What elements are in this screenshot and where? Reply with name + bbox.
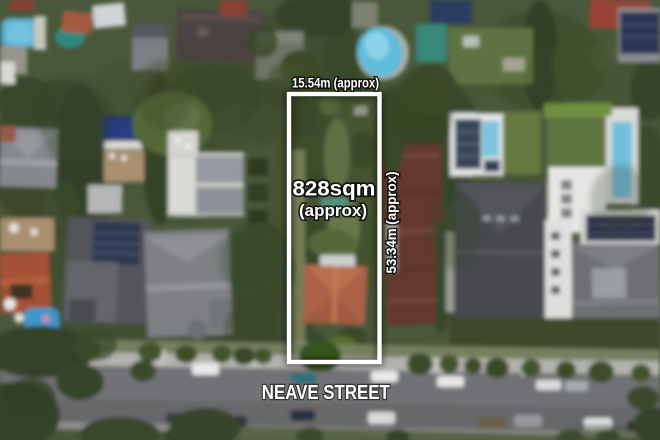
svg-text:828sqm: 828sqm bbox=[293, 178, 376, 201]
svg-text:NEAVE STREET: NEAVE STREET bbox=[262, 382, 390, 404]
svg-text:(approx): (approx) bbox=[299, 202, 367, 220]
svg-text:53.34m (approx): 53.34m (approx) bbox=[383, 172, 399, 274]
svg-text:15.54m (approx): 15.54m (approx) bbox=[292, 76, 379, 91]
